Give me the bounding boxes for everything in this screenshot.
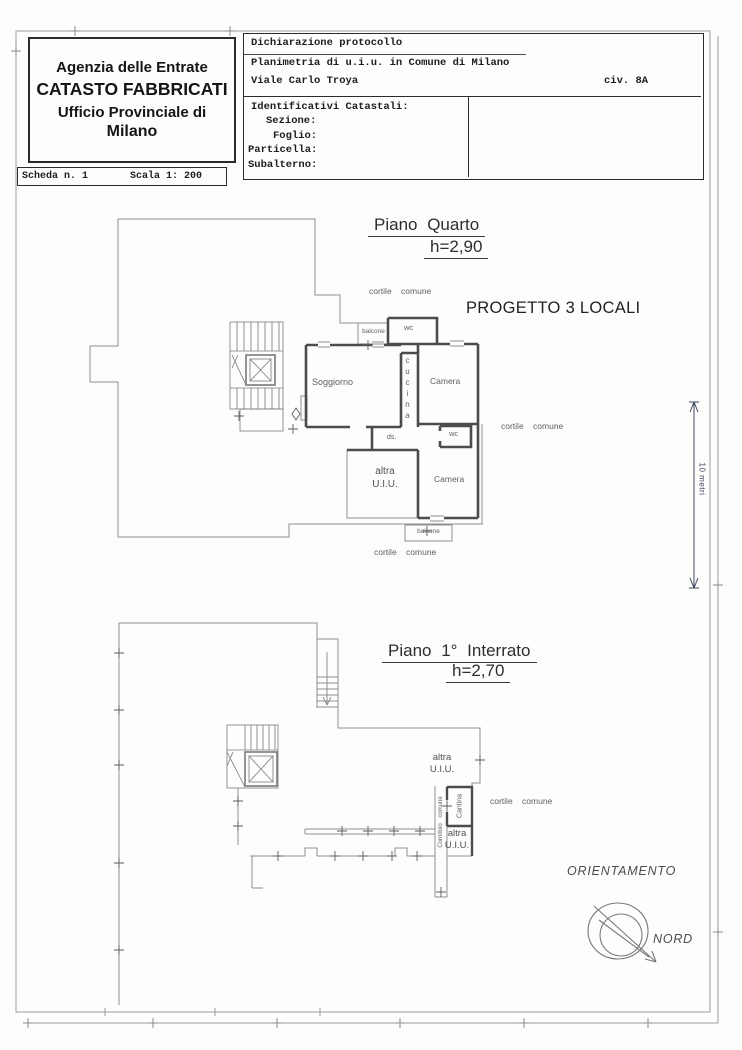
lower-plan-title: Piano 1° Interrato [382,641,537,663]
altra-uiu-lower-bottom-label: altra U.I.U. [435,828,479,852]
cantina-label: Cantina [457,794,464,818]
balcone-top-label: balcone [359,328,388,335]
wc-mid-label: wc [449,429,458,438]
agency-name: Agenzia delle Entrate [56,59,208,76]
nord-label: NORD [653,932,693,946]
upper-stairwell [230,322,283,431]
office-city: Milano [107,123,158,141]
planimetria-line: Planimetria di u.i.u. in Comune di Milan… [251,57,509,69]
street-line: Viale Carlo Troya [251,75,358,87]
field-particella: Particella: [248,144,317,156]
box-divider [244,96,701,97]
office-line: Ufficio Provinciale di [58,104,206,121]
lower-plan-height: h=2,70 [446,661,510,683]
balcone-bottom-label: balcone [406,528,451,535]
lower-plan-ticks [114,648,485,955]
scala-value: Scala 1: 200 [130,171,202,182]
protocol-underline [244,54,526,55]
upper-plan-title: Piano Quarto [368,215,485,237]
lower-plan-outline [119,623,480,1005]
field-foglio: Foglio: [273,130,317,142]
declaration-protocol: Dichiarazione protocollo [251,37,402,49]
soggiorno-label: Soggiorno [312,377,353,387]
cortile-comune-top-label: cortile comune [369,286,431,296]
altra-uiu-lower-top-label: altra U.I.U. [420,752,464,776]
cortile-comune-bottom-label: cortile comune [374,547,436,557]
cortile-comune-right-label: cortile comune [501,421,563,431]
identificativi-title: Identificativi Catastali: [251,101,409,113]
agency-header-box: Agenzia delle Entrate CATASTO FABBRICATI… [28,37,236,163]
field-subalterno: Subalterno: [248,159,317,171]
camera-top-label: Camera [430,376,460,386]
altra-uiu-upper-label: altra U.I.U. [363,465,407,491]
orientamento-label: ORIENTAMENTO [567,864,676,878]
wc-top-label: wc [404,323,413,332]
project-label: PROGETTO 3 LOCALI [466,299,640,318]
box-vertical-divider [468,96,469,177]
cadastral-document-page: Agenzia delle Entrate CATASTO FABBRICATI… [0,0,742,1050]
lower-stairwell [227,725,278,788]
catasto-title: CATASTO FABBRICATI [36,79,227,100]
disimpegno-label: ds. [387,434,396,441]
cortile-comune-lower-label: cortile comune [490,796,552,806]
field-sezione: Sezione: [266,115,316,127]
camera-bottom-label: Camera [434,474,464,484]
scheda-bar: Scheda n. 1 Scala 1: 200 [17,167,227,186]
scheda-number: Scheda n. 1 [22,171,88,182]
upper-plan-outline [90,219,483,541]
upper-plan-height: h=2,90 [424,237,488,259]
declaration-box: Dichiarazione protocollo Planimetria di … [243,33,704,180]
dimension-label: 10 metri [698,463,707,496]
compass-icon [588,903,656,962]
cucina-label: cucina [403,356,412,428]
civic-number: civ. 8A [604,75,648,87]
